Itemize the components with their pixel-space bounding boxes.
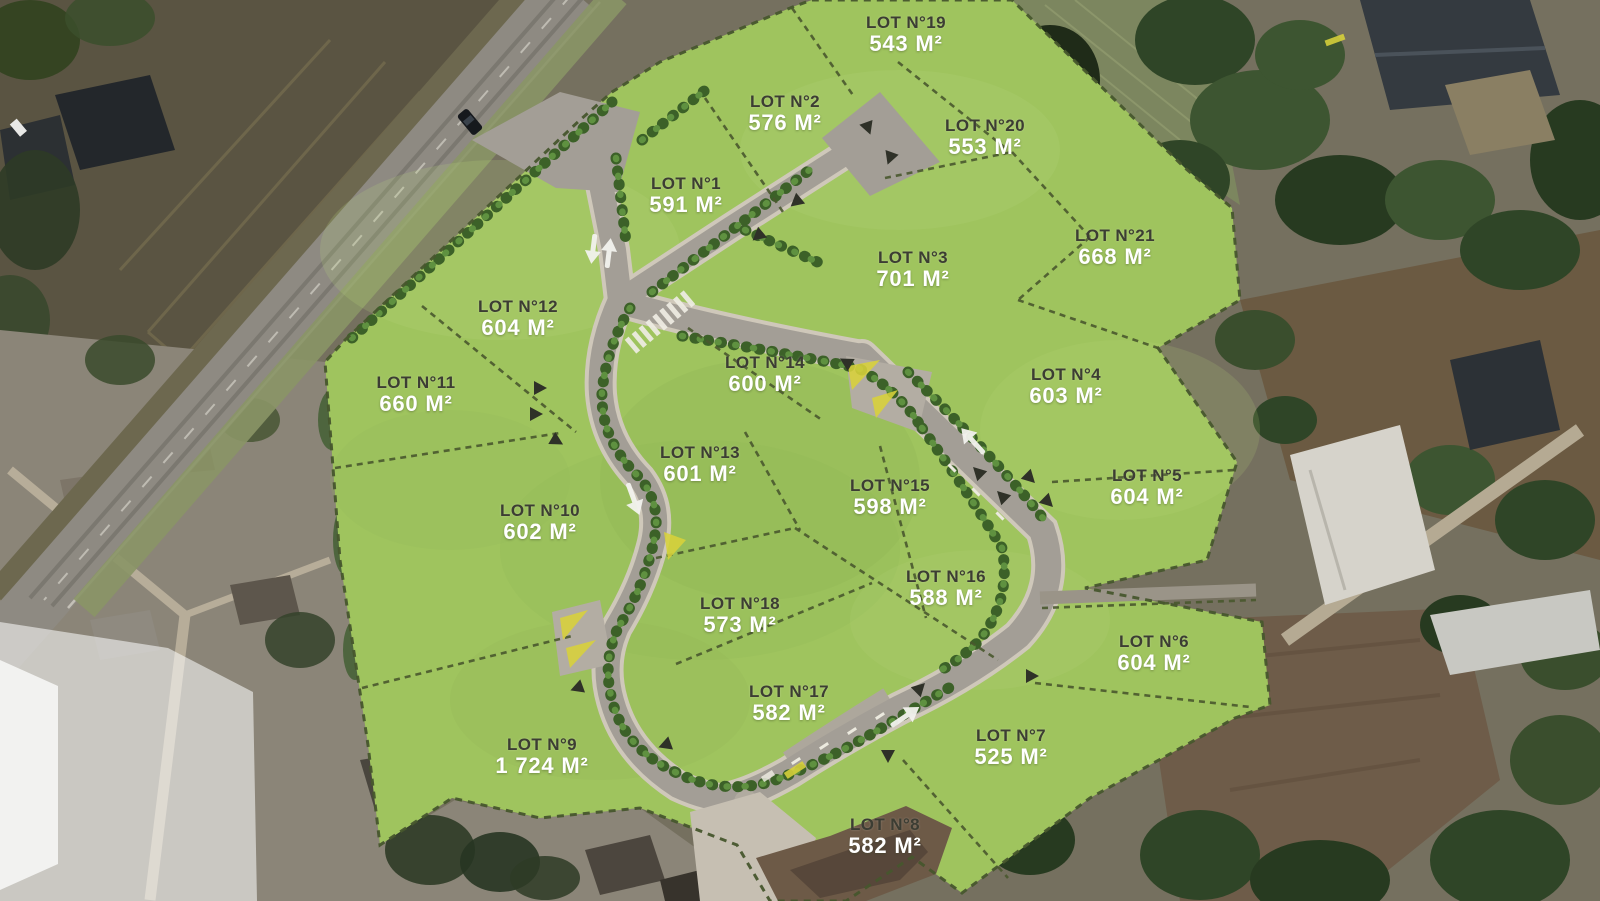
subdivision-plan: LOT N°1591 M²LOT N°2576 M²LOT N°3701 M²L…: [0, 0, 1600, 901]
aerial-map-canvas: [0, 0, 1600, 901]
white-wedge-shape: [0, 660, 58, 890]
driveway-lot5-6: [1040, 590, 1256, 598]
